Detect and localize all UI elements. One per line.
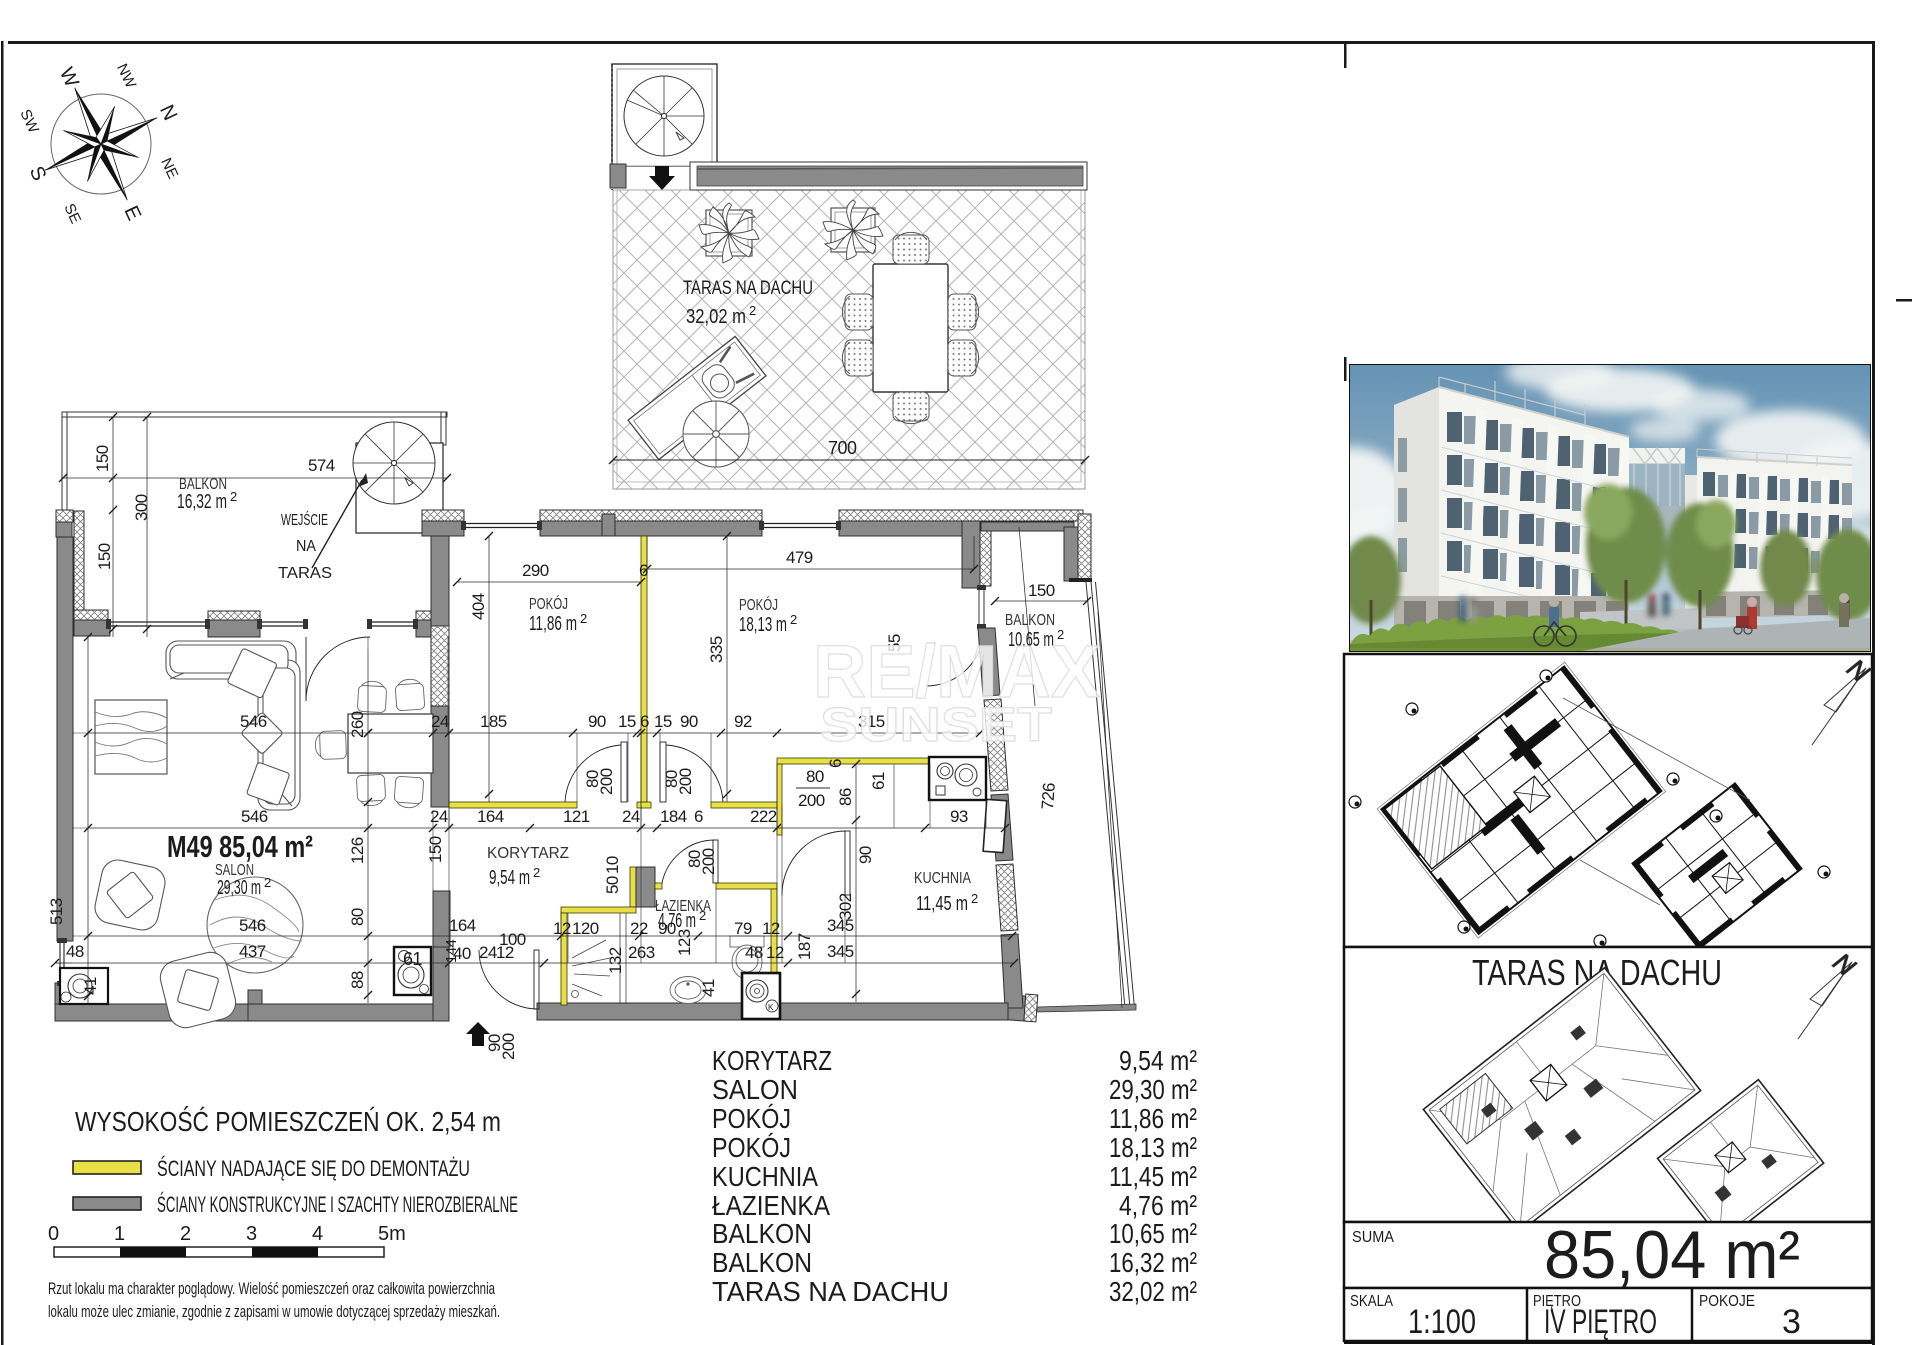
svg-text:NA: NA xyxy=(296,538,316,555)
svg-text:290: 290 xyxy=(522,561,549,580)
svg-text:335: 335 xyxy=(707,636,726,663)
svg-text:93: 93 xyxy=(950,807,968,826)
svg-text:18,13 m²: 18,13 m² xyxy=(1109,1132,1197,1163)
svg-text:132: 132 xyxy=(606,947,625,974)
svg-text:24: 24 xyxy=(622,807,640,826)
svg-text:TARAS NA DACHU: TARAS NA DACHU xyxy=(712,1276,949,1307)
svg-text:11,45 m²: 11,45 m² xyxy=(1109,1161,1197,1192)
svg-text:260: 260 xyxy=(348,711,367,738)
svg-text:574: 574 xyxy=(308,456,335,475)
svg-text:404: 404 xyxy=(469,593,488,620)
svg-text:164: 164 xyxy=(477,807,504,826)
svg-text:2: 2 xyxy=(580,611,587,626)
svg-text:185: 185 xyxy=(480,712,507,731)
svg-text:KUCHNIA: KUCHNIA xyxy=(914,870,971,887)
svg-text:KORYTARZ: KORYTARZ xyxy=(487,845,569,862)
svg-text:SKALA: SKALA xyxy=(1350,1293,1393,1310)
svg-text:6: 6 xyxy=(639,561,648,580)
svg-text:lokalu może ulec zmianie, zgod: lokalu może ulec zmianie, zgodnie z zapi… xyxy=(48,1302,500,1321)
svg-text:2: 2 xyxy=(749,303,756,318)
svg-text:345: 345 xyxy=(827,942,854,961)
svg-text:90: 90 xyxy=(658,919,676,938)
svg-text:9,54 m²: 9,54 m² xyxy=(1119,1045,1197,1076)
svg-text:10,65 m²: 10,65 m² xyxy=(1109,1218,1197,1249)
svg-text:4,76 m²: 4,76 m² xyxy=(1119,1190,1197,1221)
svg-text:16,32 m: 16,32 m xyxy=(177,491,227,513)
svg-text:300: 300 xyxy=(132,494,151,521)
svg-text:6: 6 xyxy=(694,807,703,826)
svg-text:22: 22 xyxy=(630,919,648,938)
svg-text:222: 222 xyxy=(750,807,777,826)
svg-text:TARAS NA DACHU: TARAS NA DACHU xyxy=(683,278,813,299)
svg-text:6: 6 xyxy=(826,759,845,768)
svg-text:12: 12 xyxy=(762,919,780,938)
svg-text:120: 120 xyxy=(572,919,599,938)
svg-text:WYSOKOŚĆ POMIESZCZEŃ OK. 2,54: WYSOKOŚĆ POMIESZCZEŃ OK. 2,54 m xyxy=(75,1105,501,1137)
svg-text:24: 24 xyxy=(431,712,449,731)
svg-text:2: 2 xyxy=(264,875,271,890)
svg-text:15: 15 xyxy=(654,712,672,731)
svg-text:2: 2 xyxy=(971,891,978,906)
svg-text:546: 546 xyxy=(241,807,268,826)
svg-text:2: 2 xyxy=(699,908,706,923)
svg-text:50: 50 xyxy=(603,876,622,894)
svg-text:1:100: 1:100 xyxy=(1408,1303,1476,1341)
svg-text:513: 513 xyxy=(47,898,66,925)
svg-text:86: 86 xyxy=(836,788,855,806)
svg-text:0: 0 xyxy=(48,1223,59,1245)
svg-text:184: 184 xyxy=(660,807,687,826)
svg-text:ŚCIANY KONSTRUKCYJNE I SZACHTY: ŚCIANY KONSTRUKCYJNE I SZACHTY NIEROZBIE… xyxy=(157,1192,518,1217)
svg-text:32,02 m: 32,02 m xyxy=(686,306,746,328)
svg-text:11,86 m: 11,86 m xyxy=(529,613,577,635)
svg-text:88: 88 xyxy=(348,971,367,989)
svg-text:90: 90 xyxy=(680,712,698,731)
svg-text:187: 187 xyxy=(795,933,814,960)
svg-text:16,32 m²: 16,32 m² xyxy=(1109,1247,1197,1278)
svg-text:29,30 m²: 29,30 m² xyxy=(1109,1074,1197,1105)
svg-text:726: 726 xyxy=(1038,782,1059,810)
svg-text:2: 2 xyxy=(230,489,237,504)
svg-text:10: 10 xyxy=(603,856,622,874)
svg-text:29,30 m: 29,30 m xyxy=(217,877,261,899)
svg-text:546: 546 xyxy=(240,712,267,731)
svg-text:24: 24 xyxy=(479,943,497,962)
svg-text:263: 263 xyxy=(628,943,655,962)
svg-text:KUCHNIA: KUCHNIA xyxy=(712,1161,818,1192)
svg-text:12: 12 xyxy=(553,919,571,938)
svg-text:200: 200 xyxy=(597,768,616,795)
svg-text:150: 150 xyxy=(93,445,112,472)
svg-text:KORYTARZ: KORYTARZ xyxy=(712,1045,832,1076)
svg-text:121: 121 xyxy=(563,807,590,826)
svg-text:150: 150 xyxy=(1028,581,1055,600)
svg-text:61: 61 xyxy=(403,949,422,969)
svg-text:90: 90 xyxy=(856,846,875,864)
svg-text:2: 2 xyxy=(180,1223,191,1245)
svg-text:ŚCIANY NADAJĄCE SIĘ DO DEMONTA: ŚCIANY NADAJĄCE SIĘ DO DEMONTAŻU xyxy=(157,1156,470,1181)
svg-text:302: 302 xyxy=(836,893,855,920)
svg-text:92: 92 xyxy=(734,712,752,731)
svg-text:2: 2 xyxy=(533,865,540,880)
svg-text:POKÓJ: POKÓJ xyxy=(712,1103,791,1134)
svg-text:61: 61 xyxy=(869,772,888,790)
svg-text:144: 144 xyxy=(443,940,460,963)
svg-text:15: 15 xyxy=(618,712,636,731)
svg-text:9,54 m: 9,54 m xyxy=(489,867,530,889)
svg-text:24: 24 xyxy=(430,807,448,826)
svg-text:SUNSET: SUNSET xyxy=(820,699,1052,752)
svg-text:90: 90 xyxy=(588,712,606,731)
svg-text:41: 41 xyxy=(81,977,100,995)
svg-text:3: 3 xyxy=(246,1223,257,1245)
svg-text:ŁAZIENKA: ŁAZIENKA xyxy=(712,1190,830,1221)
svg-text:200: 200 xyxy=(676,768,695,795)
svg-text:TARAS: TARAS xyxy=(278,565,332,582)
svg-text:437: 437 xyxy=(239,942,266,961)
svg-text:3: 3 xyxy=(1782,1303,1801,1341)
svg-text:5m: 5m xyxy=(378,1223,406,1245)
svg-text:200: 200 xyxy=(499,1033,518,1060)
svg-text:SUMA: SUMA xyxy=(1352,1229,1394,1246)
svg-text:48: 48 xyxy=(745,943,763,962)
svg-text:546: 546 xyxy=(239,916,266,935)
svg-text:SALON: SALON xyxy=(712,1074,798,1105)
svg-text:150: 150 xyxy=(95,543,114,570)
svg-text:POKÓJ: POKÓJ xyxy=(739,595,778,614)
svg-text:126: 126 xyxy=(348,837,367,864)
svg-text:12: 12 xyxy=(766,943,784,962)
svg-text:11,45 m: 11,45 m xyxy=(916,893,968,915)
svg-text:WEJŚCIE: WEJŚCIE xyxy=(281,510,328,529)
svg-text:BALKON: BALKON xyxy=(1005,612,1055,629)
svg-text:K: K xyxy=(768,1003,774,1012)
svg-text:85,04 m²: 85,04 m² xyxy=(1544,1217,1800,1293)
svg-text:200: 200 xyxy=(798,791,825,810)
svg-text:6: 6 xyxy=(640,712,649,731)
svg-text:18,13 m: 18,13 m xyxy=(739,614,787,636)
svg-text:100: 100 xyxy=(499,930,526,949)
svg-text:200: 200 xyxy=(699,848,718,875)
svg-text:479: 479 xyxy=(786,548,813,567)
svg-text:M49 85,04 m²: M49 85,04 m² xyxy=(167,829,313,864)
svg-text:2: 2 xyxy=(790,612,797,627)
svg-text:1: 1 xyxy=(114,1223,125,1245)
svg-text:700: 700 xyxy=(828,438,857,458)
svg-text:48: 48 xyxy=(66,942,84,961)
svg-text:4: 4 xyxy=(312,1223,323,1245)
svg-text:41: 41 xyxy=(699,979,718,997)
svg-text:11,86 m²: 11,86 m² xyxy=(1109,1103,1197,1134)
svg-text:80: 80 xyxy=(806,767,824,786)
svg-text:79: 79 xyxy=(734,919,752,938)
svg-text:150: 150 xyxy=(426,836,445,863)
svg-text:POKÓJ: POKÓJ xyxy=(529,594,568,613)
svg-text:Rzut lokalu ma charakter poglą: Rzut lokalu ma charakter poglądowy. Wiel… xyxy=(48,1279,495,1298)
svg-text:164: 164 xyxy=(449,916,476,935)
svg-text:IV PIĘTRO: IV PIĘTRO xyxy=(1544,1303,1657,1341)
svg-text:POKÓJ: POKÓJ xyxy=(712,1132,791,1163)
svg-text:BALKON: BALKON xyxy=(712,1247,812,1278)
svg-text:123: 123 xyxy=(675,929,694,956)
svg-text:POKOJE: POKOJE xyxy=(1699,1293,1755,1310)
svg-text:BALKON: BALKON xyxy=(712,1218,812,1249)
svg-text:32,02 m²: 32,02 m² xyxy=(1109,1276,1197,1307)
svg-text:80: 80 xyxy=(348,908,367,926)
